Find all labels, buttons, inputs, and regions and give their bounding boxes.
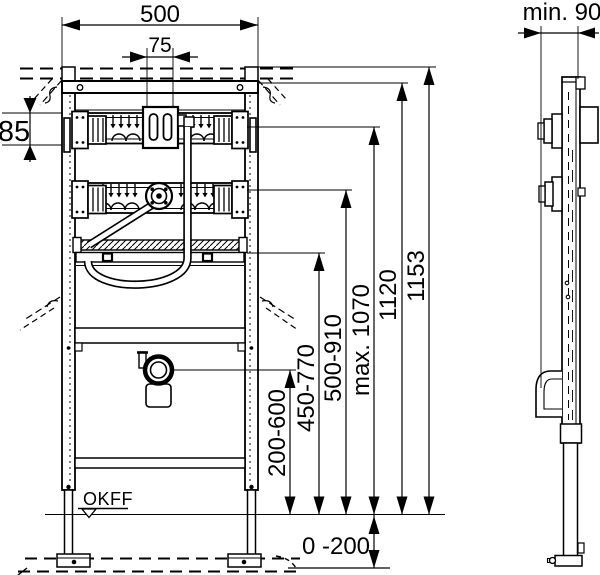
flush-pipe-box	[143, 107, 178, 148]
technical-drawing-page: 500 75 85 min. 90 200-600 450-770 500-91…	[0, 0, 600, 575]
flush-max-height-label: max. 1070	[348, 284, 375, 396]
left-rail-slot	[64, 118, 70, 152]
dimensions	[2, 17, 599, 568]
flush-pipe-width-label: 75	[148, 34, 171, 57]
overall-width-label: 500	[140, 1, 180, 28]
right-leg	[248, 490, 256, 556]
drain-pipe-outlet	[145, 357, 172, 384]
floor-datum-triangle-icon	[82, 509, 96, 518]
drain-bracket	[146, 384, 171, 407]
frame-height-label: 1120	[375, 269, 402, 321]
side-flush-box	[580, 107, 598, 143]
plate-slot	[103, 254, 112, 262]
top-crossbar	[62, 81, 258, 93]
side-view	[536, 77, 598, 566]
water-connection-range-label: 500-910	[320, 314, 347, 402]
floor-level-datum-label: OKFF	[83, 489, 133, 509]
screw-hole-icon	[77, 85, 83, 91]
floor-buildup-label: 0 -200	[302, 533, 370, 560]
drain-assembly	[137, 352, 172, 407]
side-leg	[564, 443, 578, 556]
drain-range-label: 200-600	[264, 389, 291, 477]
side-foot	[555, 556, 582, 567]
rail-height-label: 85	[0, 116, 30, 148]
mounting-plate-range-label: 450-770	[293, 344, 320, 432]
right-rail-slot	[250, 118, 256, 152]
upper-mounting-rail	[72, 107, 248, 149]
side-drain-elbow	[536, 371, 562, 417]
lower-crossbar	[75, 458, 245, 468]
side-profile	[562, 77, 580, 443]
middle-crossbar	[75, 328, 245, 343]
screw-hole-icon	[237, 85, 243, 91]
plate-slot	[203, 254, 212, 262]
left-leg	[65, 490, 73, 556]
total-height-label: 1153	[403, 250, 430, 302]
installation-frame-drawing: 500 75 85 min. 90 200-600 450-770 500-91…	[0, 0, 600, 575]
min-depth-label: min. 90	[523, 0, 600, 26]
